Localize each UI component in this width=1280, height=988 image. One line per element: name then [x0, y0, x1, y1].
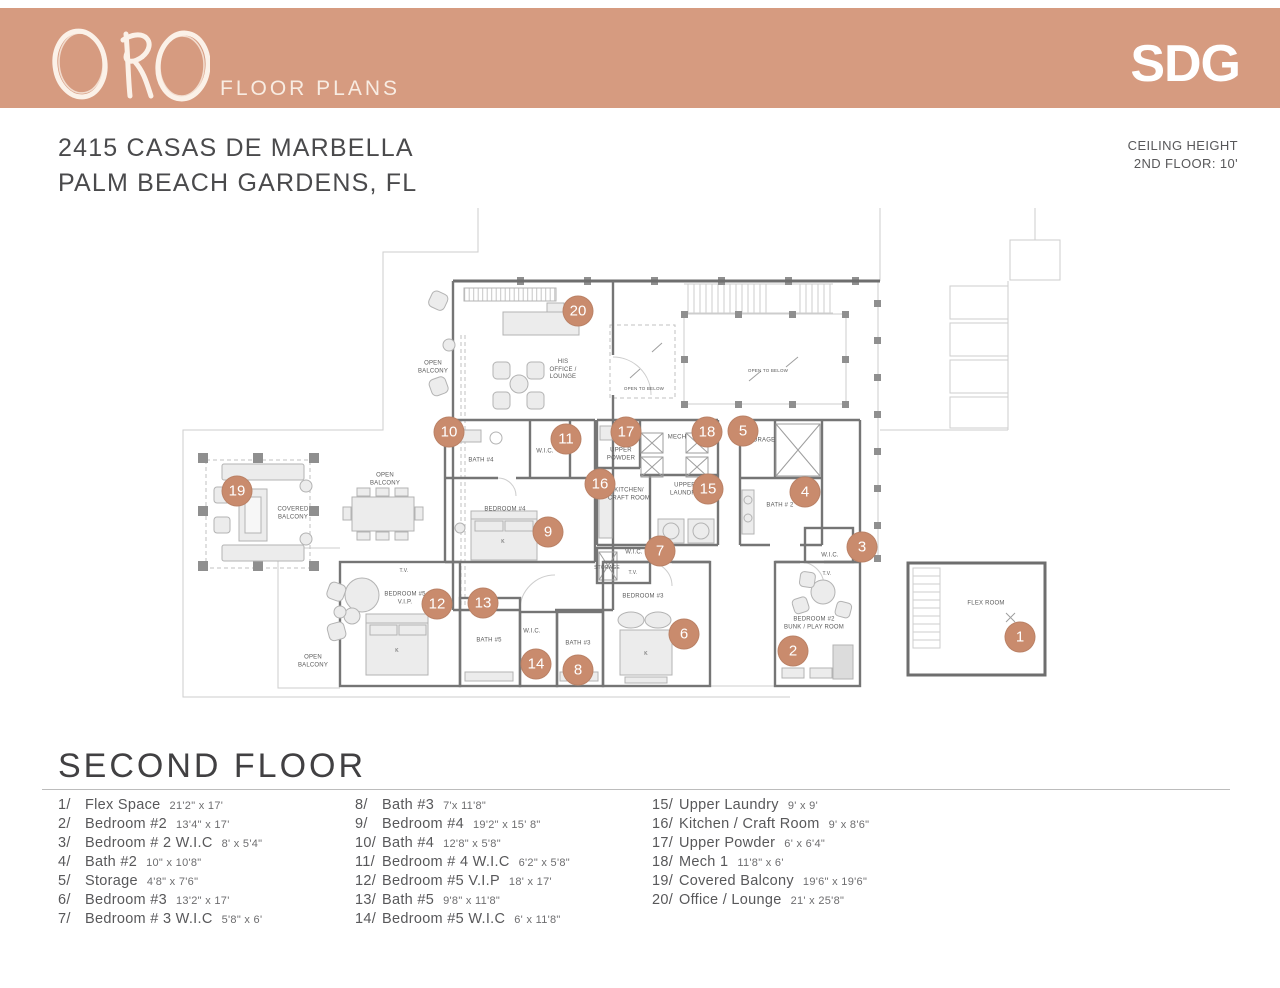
legend-item: 15/Upper Laundry9' x 9': [652, 797, 869, 816]
plan-marker-12: 12: [422, 589, 453, 620]
legend-column-3: 15/Upper Laundry9' x 9'16/Kitchen / Craf…: [652, 797, 869, 911]
plan-marker-3: 3: [847, 532, 878, 563]
legend-item: 20/Office / Lounge21' x 25'8": [652, 892, 869, 911]
plan-marker-14: 14: [521, 649, 552, 680]
room-label: STORAGE: [594, 565, 620, 571]
room-label: COVERED BALCONY: [277, 507, 308, 522]
legend-item: 14/Bedroom #5 W.I.C6' x 11'8": [355, 911, 570, 930]
legend-item: 13/Bath #59'8" x 11'8": [355, 892, 570, 911]
legend-item: 6/Bedroom #313'2" x 17': [58, 892, 262, 911]
plan-marker-20: 20: [563, 296, 594, 327]
room-label: OPEN BALCONY: [298, 655, 328, 670]
legend-item: 17/Upper Powder6' x 6'4": [652, 835, 869, 854]
room-label: HIS OFFICE / LOUNGE: [550, 359, 577, 382]
legend-item: 5/Storage4'8" x 7'6": [58, 873, 262, 892]
room-label: BATH #5: [476, 637, 501, 645]
legend-item: 11/Bedroom # 4 W.I.C6'2" x 5'8": [355, 854, 570, 873]
room-label: BEDROOM #4: [484, 506, 525, 514]
room-label: K: [501, 539, 505, 545]
plan-marker-15: 15: [693, 474, 724, 505]
plan-marker-1: 1: [1005, 622, 1036, 653]
plan-marker-4: 4: [790, 477, 821, 508]
plan-marker-2: 2: [778, 636, 809, 667]
legend-item: 9/Bedroom #419'2" x 15' 8": [355, 816, 570, 835]
plan-marker-5: 5: [728, 416, 759, 447]
room-label: K: [644, 651, 648, 657]
legend-item: 10/Bath #412'8" x 5'8": [355, 835, 570, 854]
room-label: W.I.C.: [821, 552, 839, 560]
room-label: UPPER POWDER: [607, 448, 635, 463]
room-label: T.V.: [823, 571, 832, 577]
plan-marker-19: 19: [222, 476, 253, 507]
room-label: T.V.: [400, 568, 409, 574]
legend-item: 3/Bedroom # 2 W.I.C8' x 5'4": [58, 835, 262, 854]
room-label: K: [395, 648, 399, 654]
room-label: BEDROOM #5 V.I.P.: [384, 592, 425, 607]
plan-marker-13: 13: [468, 588, 499, 619]
plan-marker-6: 6: [669, 619, 700, 650]
legend-column-1: 1/Flex Space21'2" x 17'2/Bedroom #213'4"…: [58, 797, 262, 930]
room-label: OPEN BALCONY: [370, 473, 400, 488]
floor-plan-sheet: FLOOR PLANS SDG 2415 CASAS DE MARBELLA P…: [0, 0, 1280, 988]
legend-item: 8/Bath #37'x 11'8": [355, 797, 570, 816]
legend-item: 18/Mech 111'8" x 6': [652, 854, 869, 873]
room-label: BEDROOM #3: [622, 593, 663, 601]
room-label: OPEN BALCONY: [418, 361, 448, 376]
section-title: SECOND FLOOR: [58, 747, 366, 786]
divider: [42, 789, 1230, 790]
legend-item: 19/Covered Balcony19'6" x 19'6": [652, 873, 869, 892]
room-label: W.I.C.: [536, 448, 554, 456]
room-label: BATH #3: [565, 640, 590, 648]
legend-item: 12/Bedroom #5 V.I.P18' x 17': [355, 873, 570, 892]
room-label: BATH #4: [468, 457, 493, 465]
legend-item: 7/Bedroom # 3 W.I.C5'8" x 6': [58, 911, 262, 930]
plan-marker-10: 10: [434, 417, 465, 448]
room-label: T.V.: [629, 570, 638, 576]
plan-marker-8: 8: [563, 655, 594, 686]
legend-item: 16/Kitchen / Craft Room9' x 8'6": [652, 816, 869, 835]
plan-marker-18: 18: [692, 417, 723, 448]
plan-marker-9: 9: [533, 517, 564, 548]
plan-marker-16: 16: [585, 469, 616, 500]
legend-column-2: 8/Bath #37'x 11'8"9/Bedroom #419'2" x 15…: [355, 797, 570, 930]
room-label: FLEX ROOM: [967, 600, 1004, 608]
room-label: MECH: [668, 434, 686, 442]
plan-marker-7: 7: [645, 536, 676, 567]
room-label: BEDROOM #2 BUNK / PLAY ROOM: [784, 617, 844, 632]
room-label: BATH # 2: [766, 502, 793, 510]
room-label: OPEN TO BELOW: [748, 368, 788, 374]
room-label: W.I.C.: [625, 549, 643, 557]
plan-marker-17: 17: [611, 417, 642, 448]
room-label: OPEN TO BELOW: [624, 386, 664, 392]
legend-item: 4/Bath #210" x 10'8": [58, 854, 262, 873]
legend-item: 1/Flex Space21'2" x 17': [58, 797, 262, 816]
room-label: W.I.C.: [523, 628, 541, 636]
legend-item: 2/Bedroom #213'4" x 17': [58, 816, 262, 835]
plan-marker-11: 11: [551, 424, 582, 455]
